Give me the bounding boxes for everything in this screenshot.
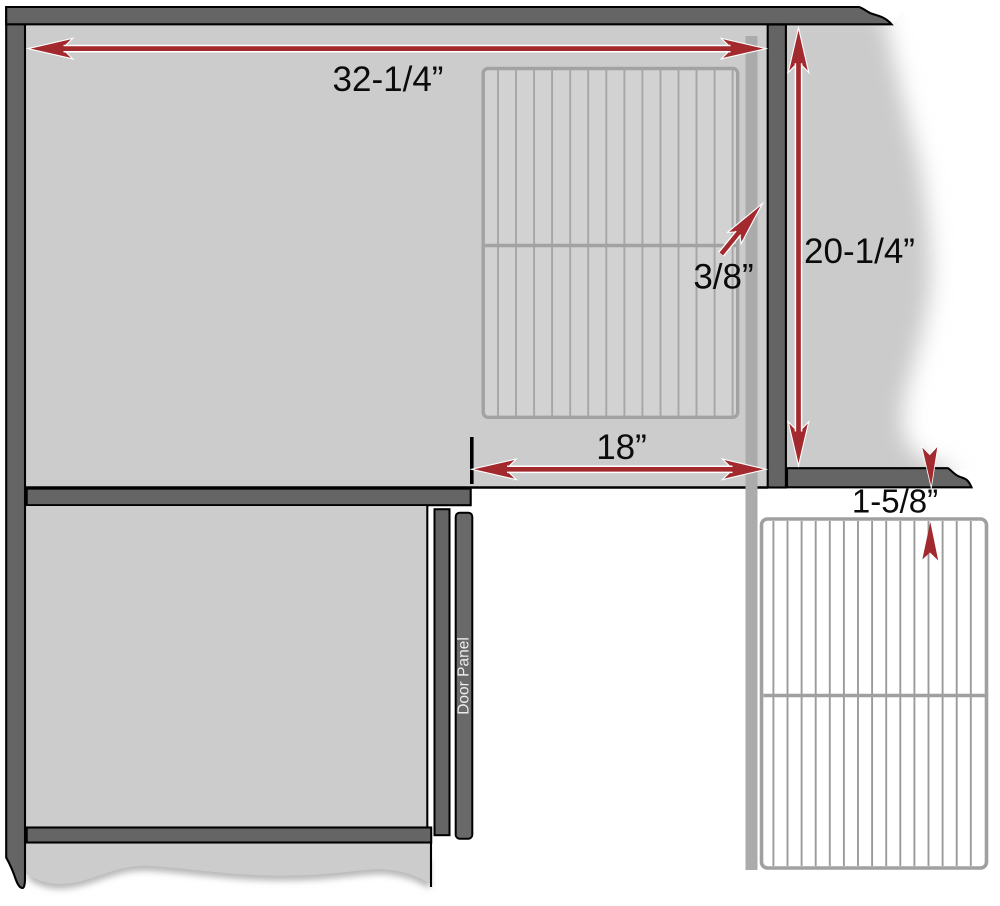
svg-text:20-1/4”: 20-1/4”	[804, 232, 915, 271]
svg-text:3/8”: 3/8”	[693, 258, 753, 297]
svg-text:32-1/4”: 32-1/4”	[333, 60, 444, 99]
svg-text:1-5/8”: 1-5/8”	[852, 483, 938, 520]
svg-text:18”: 18”	[596, 428, 647, 467]
svg-text:Door Panel: Door Panel	[456, 637, 473, 715]
